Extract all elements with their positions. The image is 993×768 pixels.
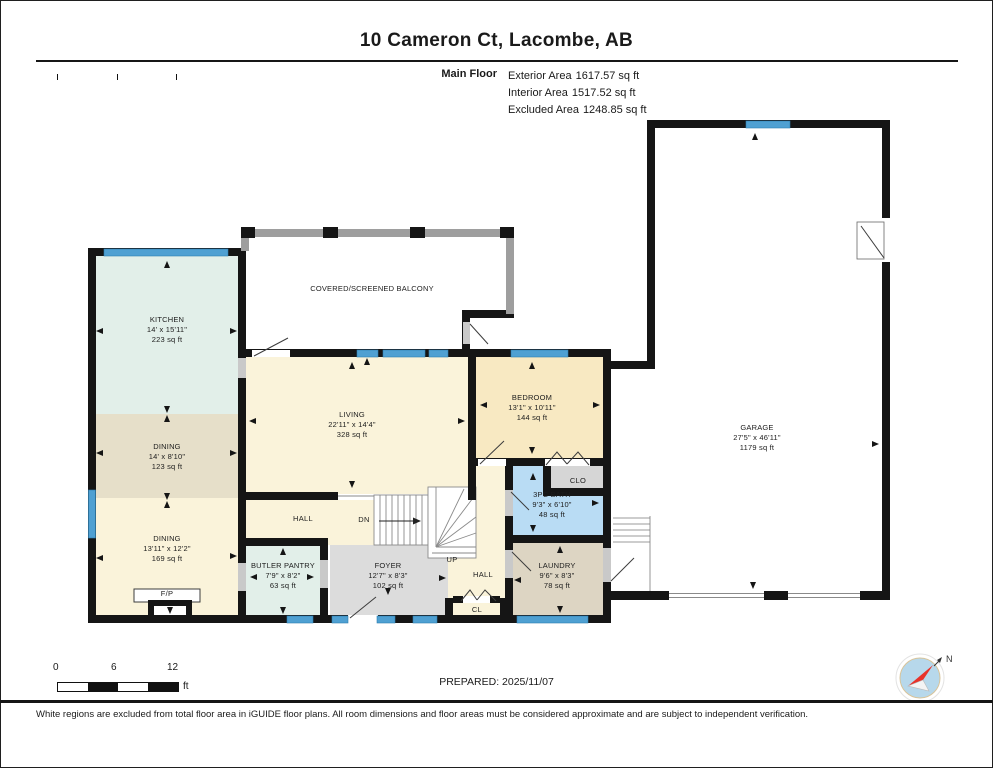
disclaimer-text: White regions are excluded from total fl… — [36, 709, 966, 720]
room-fills — [94, 126, 884, 617]
scale-bar: 0 6 12 — [50, 662, 210, 674]
room-label-laundry: LAUNDRY9'6" x 8'3"78 sq ft — [538, 561, 575, 590]
label-clo: CLO — [570, 476, 586, 485]
scale-tick-12: 12 — [167, 662, 178, 673]
exterior-steps — [613, 516, 650, 591]
room-label-kitchen: KITCHEN14' x 15'11"223 sq ft — [147, 315, 187, 344]
garage-side-door — [857, 222, 884, 259]
floorplan-page: 10 Cameron Ct, Lacombe, AB Main Floor Ex… — [0, 0, 993, 768]
label-hall-2: HALL — [473, 570, 493, 579]
label-hall-1: HALL — [293, 514, 313, 523]
room-label-dining-upper: DINING14' x 8'10"123 sq ft — [149, 442, 186, 471]
prepared-date: PREPARED: 2025/11/07 — [0, 676, 993, 688]
footer-divider — [0, 700, 993, 703]
label-fireplace: F/P — [161, 589, 174, 598]
label-up: UP — [446, 555, 457, 564]
scale-tick-0: 0 — [53, 662, 59, 673]
label-dn: DN — [358, 515, 369, 524]
compass-north-label: N — [946, 654, 953, 664]
compass: N — [888, 648, 960, 706]
stairs-down — [374, 495, 428, 545]
scale-tick-6: 6 — [111, 662, 117, 673]
room-garage — [653, 126, 884, 593]
label-cl: CL — [472, 605, 482, 614]
floorplan-drawing: KITCHEN14' x 15'11"223 sq ftDINING14' x … — [0, 0, 993, 768]
room-label-balcony: COVERED/SCREENED BALCONY — [310, 284, 434, 293]
